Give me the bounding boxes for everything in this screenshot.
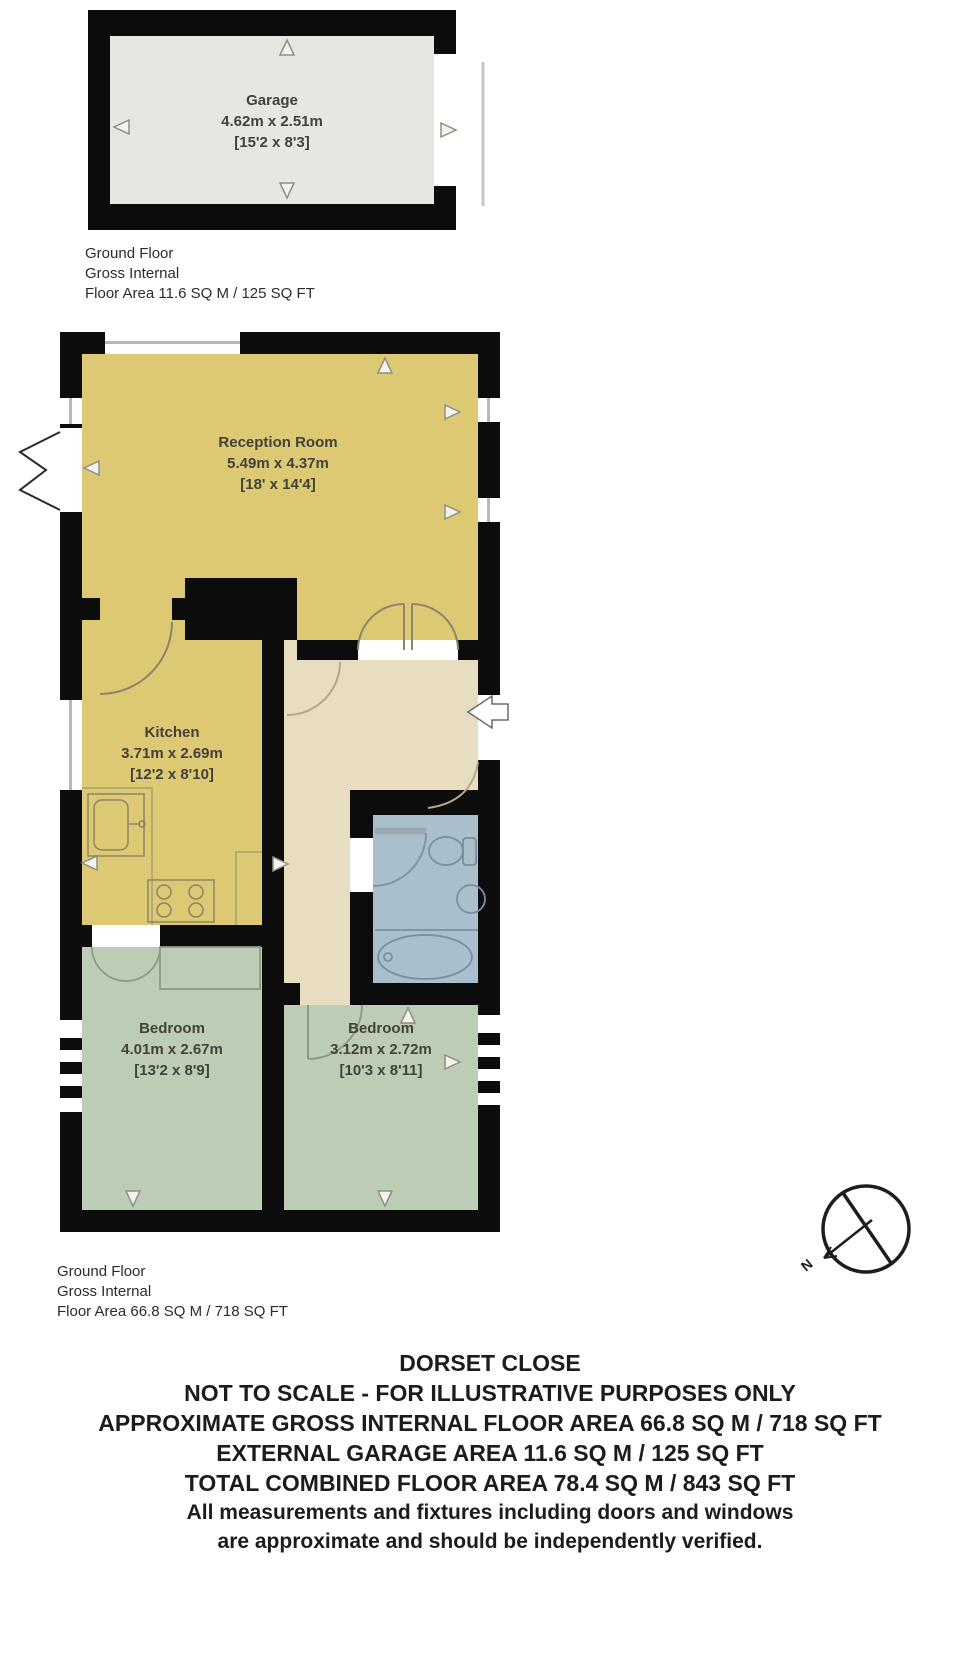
kitchen-dims-metric: 3.71m x 2.69m (42, 743, 302, 764)
wall-bathroom-left-a (350, 815, 373, 838)
reception-dims-metric: 5.49m x 4.37m (98, 453, 458, 474)
wall-bedroom-left-top-b (160, 925, 262, 947)
internal-area-line: APPROXIMATE GROSS INTERNAL FLOOR AREA 66… (0, 1408, 980, 1438)
garage-wall-top (88, 10, 456, 36)
garage-wall-right-top (434, 10, 456, 54)
garage-wall-bottom (88, 204, 456, 230)
reception-name: Reception Room (98, 432, 458, 453)
garage-area-line: EXTERNAL GARAGE AREA 11.6 SQ M / 125 SQ … (0, 1438, 980, 1468)
main-floor-label-line1: Ground Floor (57, 1262, 288, 1282)
main-floor-label: Ground Floor Gross Internal Floor Area 6… (57, 1262, 288, 1322)
not-to-scale-line: NOT TO SCALE - FOR ILLUSTRATIVE PURPOSES… (0, 1378, 980, 1408)
wall-bedroom-right-top-a (284, 983, 300, 1005)
wall-reception-hall-a (297, 640, 358, 660)
bedroom-right-dims-metric: 3.12m x 2.72m (251, 1039, 511, 1060)
bedroom-right-dims-imperial: [10'3 x 8'11] (251, 1060, 511, 1081)
floorplan-page: N Garage 4.62m x 2.51m [15'2 x 8'3] Grou… (0, 0, 980, 1680)
reception-room-label: Reception Room 5.49m x 4.37m [18' x 14'4… (98, 432, 458, 495)
wall-bedroom-left-top-a (82, 925, 92, 947)
external-double-door (20, 432, 60, 510)
garage-floor-label-line1: Ground Floor (85, 244, 315, 264)
wall-reception-hall-b (458, 640, 478, 660)
wall-bathroom-top (350, 790, 478, 815)
garage-name: Garage (112, 90, 432, 111)
compass-icon: N (798, 1186, 909, 1274)
reception-dims-imperial: [18' x 14'4] (98, 474, 458, 495)
wall-corridor-left (262, 620, 284, 1210)
disclaimer-line-2: are approximate and should be independen… (0, 1527, 980, 1556)
garage-floor-label: Ground Floor Gross Internal Floor Area 1… (85, 244, 315, 304)
wall-bedroom-right-top-b (352, 983, 478, 1005)
disclaimer-line-1: All measurements and fixtures including … (0, 1498, 980, 1527)
garage-floor-label-line2: Gross Internal (85, 264, 315, 284)
bedroom-right-name: Bedroom (251, 1018, 511, 1039)
window-left-reception-line (69, 398, 72, 424)
disclaimer-block: DORSET CLOSE NOT TO SCALE - FOR ILLUSTRA… (0, 1348, 980, 1556)
bathroom-floor (373, 815, 478, 983)
bedroom-right-label: Bedroom 3.12m x 2.72m [10'3 x 8'11] (251, 1018, 511, 1081)
garage-floor-label-line3: Floor Area 11.6 SQ M / 125 SQ FT (85, 284, 315, 304)
opening-left-external-door (60, 428, 82, 512)
property-title: DORSET CLOSE (0, 1348, 980, 1378)
garage-dims-metric: 4.62m x 2.51m (112, 111, 432, 132)
window-top-reception-line (105, 341, 240, 344)
main-floor-label-line3: Floor Area 66.8 SQ M / 718 SQ FT (57, 1302, 288, 1322)
kitchen-name: Kitchen (42, 722, 302, 743)
garage-wall-right-bottom (434, 186, 456, 230)
kitchen-label: Kitchen 3.71m x 2.69m [12'2 x 8'10] (42, 722, 302, 785)
compass-north-label: N (798, 1256, 816, 1275)
opening-entrance-door (478, 695, 500, 760)
window-left-bedroom-bar (60, 1086, 82, 1098)
garage-wall-left (88, 10, 110, 230)
hallway-corridor-floor (284, 640, 350, 1005)
wall-outer-bottom (60, 1210, 500, 1232)
kitchen-dims-imperial: [12'2 x 8'10] (42, 764, 302, 785)
window-right-reception-1-line (487, 398, 490, 422)
window-right-reception-2-line (487, 498, 490, 522)
entrance-hall-floor (350, 660, 478, 790)
garage-label: Garage 4.62m x 2.51m [15'2 x 8'3] (112, 90, 432, 153)
total-area-line: TOTAL COMBINED FLOOR AREA 78.4 SQ M / 84… (0, 1468, 980, 1498)
main-floor-label-line2: Gross Internal (57, 1282, 288, 1302)
wall-reception-kitchen-a (82, 598, 100, 620)
garage-dims-imperial: [15'2 x 8'3] (112, 132, 432, 153)
window-right-bedroom-bar (478, 1081, 500, 1093)
